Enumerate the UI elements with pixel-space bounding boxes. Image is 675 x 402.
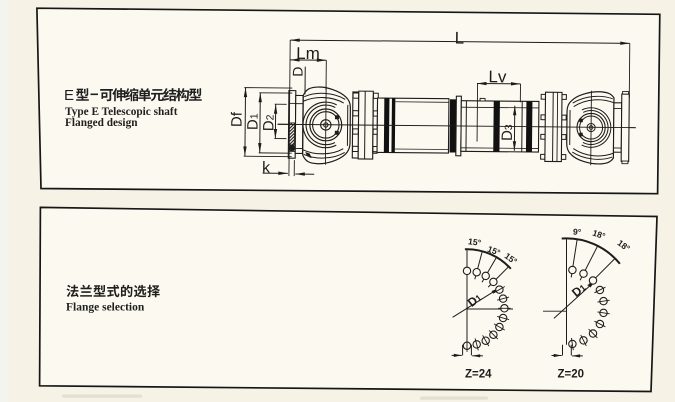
svg-text:k: k — [262, 160, 271, 177]
svg-text:Flanged design: Flanged design — [65, 117, 138, 129]
svg-text:Flange selection: Flange selection — [66, 302, 145, 314]
svg-text:E: E — [64, 87, 74, 104]
svg-text:Df: Df — [228, 111, 245, 127]
svg-text:Z=24: Z=24 — [465, 369, 492, 381]
svg-text:Lm: Lm — [296, 44, 320, 63]
svg-text:9°: 9° — [573, 226, 583, 237]
svg-text:Z=20: Z=20 — [558, 369, 585, 381]
svg-text:Lv: Lv — [488, 67, 507, 86]
svg-text:L: L — [455, 28, 465, 47]
svg-text:D: D — [289, 66, 305, 76]
svg-text:15°: 15° — [467, 236, 482, 248]
